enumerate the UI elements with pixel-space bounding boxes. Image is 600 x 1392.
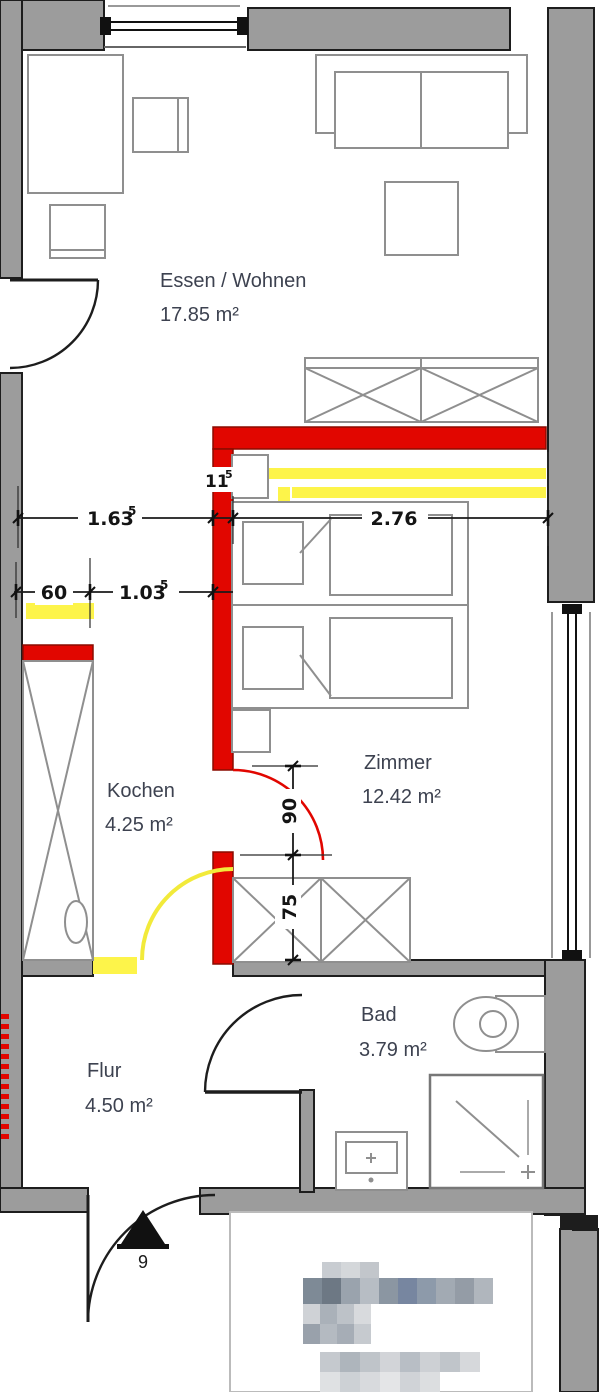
dim-text-75: 75 (279, 894, 301, 920)
yellow-line-2 (292, 487, 546, 498)
furniture-kitchen (23, 661, 93, 960)
dim-label-90: 90 (275, 789, 301, 833)
room-label-zimmer: Zimmer (364, 752, 432, 774)
closet (233, 878, 410, 962)
dim-label-115: 11 5 (199, 467, 239, 492)
wall-flur-bad (300, 1090, 314, 1192)
dining-table (28, 55, 123, 193)
room-area-essen-wohnen: 17.85 m² (160, 304, 239, 326)
dim-label-103: 1.03 5 (113, 578, 179, 604)
side-table (385, 182, 458, 255)
wall-right-upper (548, 8, 594, 602)
dim-label-163: 1.63 5 (78, 503, 142, 530)
room-label-flur: Flur (87, 1060, 122, 1082)
wall-left-lower (0, 373, 22, 1193)
yellow-wall-kochen (93, 957, 137, 974)
room-area-flur: 4.50 m² (85, 1095, 153, 1117)
wall-kochen-bottom (22, 960, 93, 976)
wall-bottom-left (0, 1188, 88, 1212)
double-bed (232, 502, 468, 708)
dim-text-60: 60 (41, 582, 67, 604)
dim-label-60: 60 (35, 579, 73, 605)
wall-top-right (248, 8, 510, 50)
dim-text-163: 1.63 (87, 508, 134, 530)
room-label-essen-wohnen: Essen / Wohnen (160, 270, 306, 292)
room-area-bad: 3.79 m² (359, 1039, 427, 1061)
floor-plan: 1.63 5 2.76 11 5 60 1.03 5 90 75 (0, 0, 600, 1392)
entrance-number: 9 (138, 1252, 148, 1272)
entrance-marker: 9 (117, 1210, 169, 1272)
svg-text:5: 5 (128, 504, 136, 518)
wall-right-bottom-strip (560, 1229, 598, 1392)
blanket-2 (330, 618, 452, 698)
window-top (100, 6, 248, 47)
shower (430, 1075, 543, 1188)
floor-plan-page: 1.63 5 2.76 11 5 60 1.03 5 90 75 (0, 0, 600, 1392)
washbasin (336, 1132, 407, 1190)
red-wall-zimmer-left-upper (213, 449, 233, 770)
door-living (10, 280, 98, 368)
nightstand-bottom (232, 710, 270, 752)
title-block (230, 1212, 532, 1392)
svg-text:5: 5 (160, 578, 168, 592)
pillow-1 (243, 522, 303, 584)
yellow-wall-left (26, 603, 94, 619)
room-area-zimmer: 12.42 m² (362, 786, 441, 808)
toilet (454, 996, 545, 1052)
yellow-line-1 (235, 468, 546, 479)
room-label-kochen: Kochen (107, 780, 175, 802)
red-wall-kochen-unit (23, 645, 93, 661)
boundary-corner (572, 1218, 597, 1231)
chair-right (133, 98, 188, 152)
dim-text-103: 1.03 (119, 582, 166, 604)
door-entrance (88, 1195, 215, 1322)
door-bad (205, 995, 302, 1092)
dim-label-75: 75 (275, 885, 301, 929)
wall-left-upper (0, 0, 22, 278)
window-right-zimmer (552, 604, 590, 960)
dim-text-276: 2.76 (371, 508, 418, 530)
entrance-arrow-icon (121, 1210, 165, 1244)
entrance-arrow-base (117, 1244, 169, 1249)
sofa (316, 55, 527, 148)
wall-bottom-right (200, 1188, 585, 1214)
furniture-living (28, 55, 538, 422)
svg-text:5: 5 (225, 468, 233, 481)
room-label-bad: Bad (361, 1004, 397, 1026)
room-area-kochen: 4.25 m² (105, 814, 173, 836)
furniture-bedroom (232, 455, 468, 962)
dim-label-276: 2.76 (362, 504, 428, 530)
dim-text-90: 90 (279, 798, 301, 824)
kitchen-sink (65, 901, 87, 943)
red-wall-zimmer-top (213, 427, 546, 449)
pillow-2 (243, 627, 303, 689)
wall-right-bad (545, 960, 585, 1215)
wardrobe (305, 358, 538, 422)
